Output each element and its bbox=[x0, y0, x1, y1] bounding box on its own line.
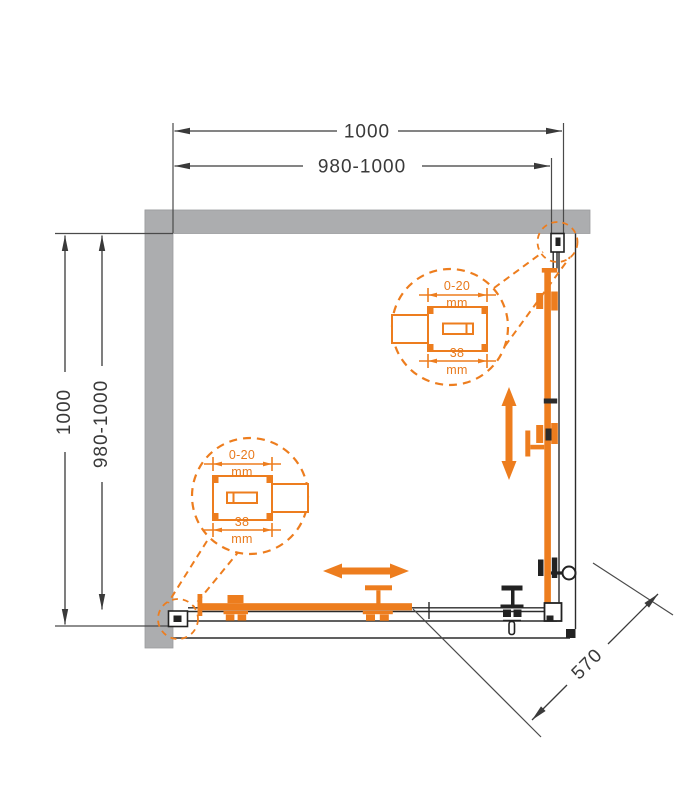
dim-depth-outer: 1000 bbox=[54, 236, 75, 625]
dim-arrow bbox=[175, 128, 191, 134]
glass-section bbox=[227, 493, 257, 504]
corner-bracket-pad bbox=[547, 616, 554, 621]
callout-leader bbox=[494, 252, 543, 288]
corner-step bbox=[566, 629, 576, 638]
door-handle bbox=[365, 585, 392, 604]
ext-diagonal-lower bbox=[413, 609, 541, 737]
wall-left bbox=[145, 210, 173, 648]
door-roller bbox=[363, 611, 393, 621]
slide-arrow-vertical bbox=[502, 387, 517, 480]
corner-hardware bbox=[501, 558, 576, 635]
ext-diagonal-upper bbox=[593, 563, 673, 615]
dim-arrow bbox=[99, 236, 105, 252]
dim-depth-outer-label: 1000 bbox=[54, 389, 75, 435]
glass-section bbox=[443, 324, 473, 335]
dim-width-outer-label: 1000 bbox=[344, 122, 390, 143]
dim-width-range-label: 980-1000 bbox=[318, 157, 406, 178]
detail-circle-top: 0-20 mm 38 mm bbox=[392, 269, 508, 385]
sliding-door-bottom bbox=[198, 585, 413, 621]
technical-drawing-page: 1000 980-1000 1000 980-1000 bbox=[0, 0, 686, 800]
dim-arrow bbox=[546, 128, 562, 134]
dim-width-range: 980-1000 bbox=[175, 157, 551, 178]
adjustment-value: 0-20 bbox=[444, 279, 470, 293]
profile-width-unit: mm bbox=[446, 363, 467, 377]
adjustment-value: 0-20 bbox=[229, 448, 255, 462]
dim-arrow bbox=[62, 609, 68, 625]
door-guide-peg bbox=[509, 622, 515, 635]
fixed-panels bbox=[173, 234, 576, 639]
detail-circle-bottom: 0-20 mm 38 mm bbox=[192, 438, 308, 554]
profile-width-unit: mm bbox=[231, 532, 252, 546]
door-rail bbox=[201, 603, 412, 610]
profile-width-value: 38 bbox=[450, 346, 465, 360]
panel-joint-tick bbox=[544, 399, 557, 404]
dim-entry-diagonal: 570 bbox=[413, 563, 673, 737]
dim-depth-range: 980-1000 bbox=[91, 236, 112, 610]
dim-depth-range-label: 980-1000 bbox=[91, 380, 112, 468]
wall-profile-bottom-left bbox=[169, 611, 188, 627]
corner-shower-enclosure-top-view: 1000 980-1000 1000 980-1000 bbox=[0, 0, 686, 800]
extension-lines bbox=[55, 123, 564, 626]
sliding-door-right bbox=[525, 268, 558, 603]
dim-arrow bbox=[534, 163, 550, 169]
dim-arrow bbox=[175, 163, 191, 169]
dim-entry-diagonal-label: 570 bbox=[568, 645, 607, 684]
wall-top bbox=[145, 210, 590, 234]
adjustment-unit: mm bbox=[446, 296, 467, 310]
walls bbox=[145, 210, 590, 648]
second-door-handle bbox=[501, 586, 524, 635]
dim-width-outer: 1000 bbox=[175, 122, 563, 143]
wall-profile-top-right bbox=[551, 234, 564, 253]
dim-arrow bbox=[99, 594, 105, 610]
corner-knob bbox=[563, 567, 576, 580]
slide-arrow-horizontal bbox=[323, 564, 409, 579]
callout-leader bbox=[168, 541, 207, 603]
dim-arrow bbox=[62, 236, 68, 252]
door-end-cap bbox=[542, 268, 558, 273]
profile-width-value: 38 bbox=[235, 515, 250, 529]
adjustment-unit: mm bbox=[231, 465, 252, 479]
